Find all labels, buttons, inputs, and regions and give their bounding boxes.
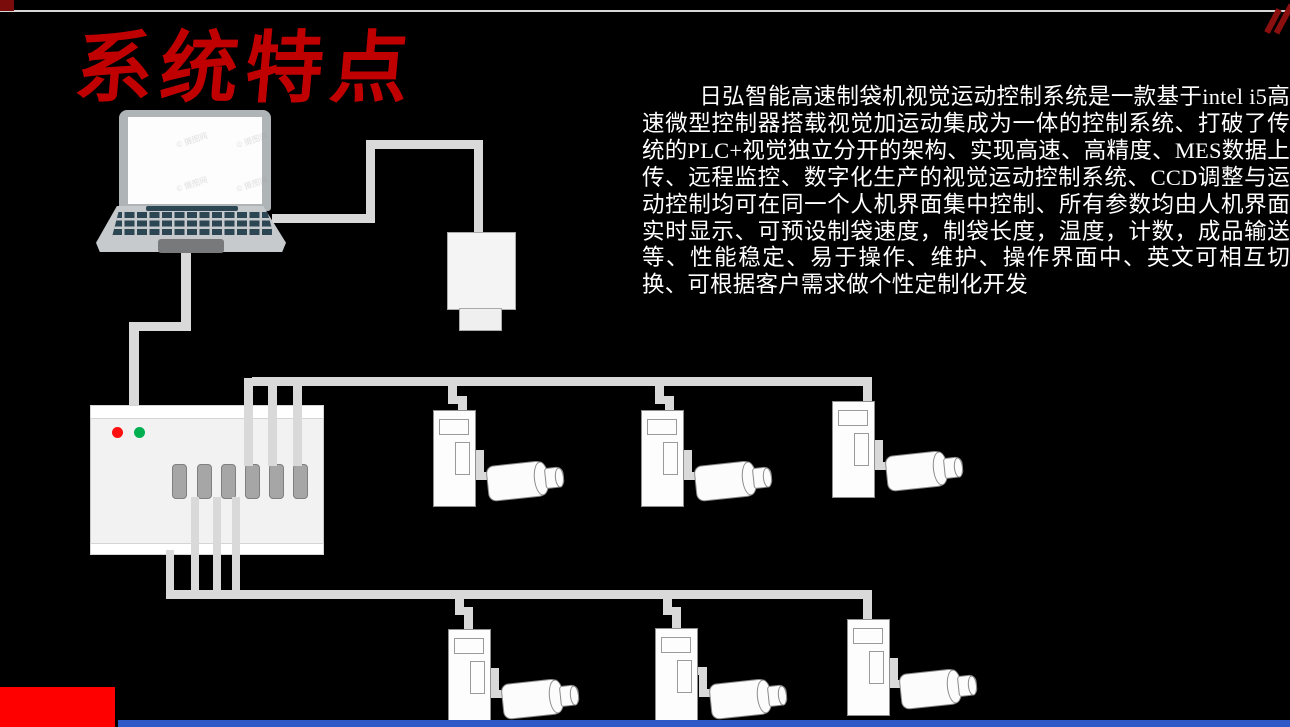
bottom-left-red-bar bbox=[0, 687, 115, 727]
cable-segment bbox=[863, 377, 872, 404]
servo-motor-2 bbox=[693, 458, 776, 502]
laptop-touchpad bbox=[158, 239, 224, 253]
slide-canvas: 系统特点 日弘智能高速制袋机视觉运动控制系统是一款基于intel i5高速微型控… bbox=[0, 0, 1290, 727]
top-left-red-block bbox=[0, 0, 14, 11]
controller-port bbox=[245, 464, 260, 499]
servo-drive-5 bbox=[655, 628, 698, 725]
motion-controller bbox=[90, 405, 324, 555]
cable-segment bbox=[232, 497, 240, 594]
drive-connector bbox=[869, 651, 884, 684]
drive-display bbox=[661, 637, 691, 653]
watermark-text: © 摄图网 bbox=[235, 174, 269, 194]
servo-drive-3 bbox=[832, 401, 875, 498]
cable-segment bbox=[474, 140, 483, 234]
controller-bottom-strip bbox=[90, 543, 324, 555]
servo-drive-6 bbox=[847, 619, 890, 716]
controller-port bbox=[172, 464, 187, 499]
cable-segment bbox=[191, 497, 199, 594]
drive-display bbox=[454, 638, 484, 654]
drive-connector bbox=[854, 433, 869, 466]
laptop-hinge bbox=[146, 206, 238, 211]
controller-port bbox=[269, 464, 284, 499]
drive-display bbox=[439, 419, 469, 435]
controller-top-strip bbox=[90, 405, 324, 419]
laptop-keyboard bbox=[112, 212, 274, 237]
cable-segment bbox=[366, 140, 483, 149]
watermark-text: © 摄图网 bbox=[175, 174, 209, 194]
cable-segment bbox=[863, 590, 872, 622]
bottom-blue-bar bbox=[118, 720, 1290, 727]
ccd-camera-body bbox=[447, 232, 516, 310]
laptop-hmi: © 摄图网 © 摄图网 © 摄图网 © 摄图网 bbox=[90, 105, 295, 257]
drive-connector bbox=[663, 442, 678, 475]
description-text: 日弘智能高速制袋机视觉运动控制系统是一款基于intel i5高速微型控制器搭载视… bbox=[642, 84, 1290, 299]
ccd-camera-lens bbox=[459, 308, 502, 331]
top-bus-line bbox=[252, 377, 872, 386]
cable-segment bbox=[129, 322, 139, 407]
servo-drive-1 bbox=[433, 410, 476, 507]
cable-segment bbox=[166, 550, 174, 594]
servo-drive-4 bbox=[448, 629, 491, 726]
controller-port bbox=[197, 464, 212, 499]
laptop-screen-display: © 摄图网 © 摄图网 © 摄图网 © 摄图网 bbox=[128, 117, 262, 204]
drive-connector bbox=[455, 442, 470, 475]
drive-display bbox=[647, 419, 677, 435]
drive-display bbox=[838, 410, 868, 426]
servo-motor-6 bbox=[898, 666, 981, 710]
laptop-screen: © 摄图网 © 摄图网 © 摄图网 © 摄图网 bbox=[119, 110, 271, 211]
cable-segment bbox=[181, 248, 191, 330]
servo-motor-3 bbox=[884, 448, 967, 492]
watermark-text: © 摄图网 bbox=[175, 130, 209, 150]
page-title: 系统特点 bbox=[71, 6, 421, 118]
drive-display bbox=[853, 628, 883, 644]
power-led-red bbox=[112, 427, 123, 438]
servo-motor-5 bbox=[708, 676, 791, 720]
cable-segment bbox=[268, 378, 277, 466]
bottom-bus-line bbox=[166, 590, 872, 599]
cable-segment bbox=[293, 378, 302, 466]
servo-motor-4 bbox=[500, 676, 583, 720]
run-led-green bbox=[134, 427, 145, 438]
controller-port bbox=[221, 464, 236, 499]
cable-segment bbox=[244, 378, 253, 466]
controller-port bbox=[293, 464, 308, 499]
drive-connector bbox=[470, 661, 485, 694]
servo-drive-2 bbox=[641, 410, 684, 507]
cable-segment bbox=[366, 140, 375, 223]
servo-motor-1 bbox=[485, 458, 568, 502]
drive-connector bbox=[677, 660, 692, 693]
cable-segment bbox=[213, 497, 221, 594]
watermark-text: © 摄图网 bbox=[235, 130, 269, 150]
